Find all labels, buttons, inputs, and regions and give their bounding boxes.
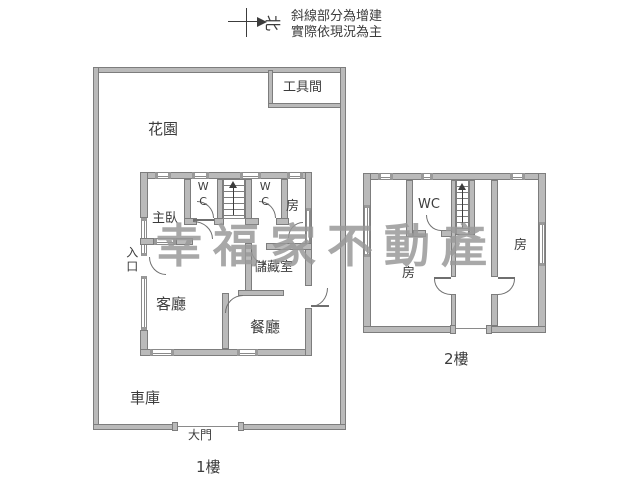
f1-toolroom-wall-bottom	[268, 103, 341, 108]
f1-house-wall-left-upper	[140, 172, 148, 218]
room-label-tool-room: 工具間	[283, 81, 322, 96]
watermark-text: 幸福家不動產	[156, 210, 498, 276]
room-label-wc-left: WC	[196, 180, 209, 210]
disclaimer-note: 斜線部分為增建 實際依現況為主	[291, 9, 382, 41]
f2-left-room-wall-lower	[451, 294, 456, 326]
f2-outer-wall-bottom-left	[363, 326, 456, 333]
f2-opening-cap-left	[450, 325, 456, 334]
f1-outer-wall-bottom-right	[238, 424, 346, 430]
f1-outer-wall-left	[93, 67, 99, 430]
f1-house-wall-right-lower	[305, 308, 312, 356]
window	[141, 276, 147, 330]
room-label-living-room: 客廳	[156, 296, 186, 313]
f1-dining-wall-top	[238, 290, 284, 296]
stairs-up-arrowhead	[229, 181, 237, 188]
entrance-label: 入口	[124, 246, 138, 274]
compass-vertical-line	[246, 8, 247, 37]
room-label-room-right-2f: 房	[514, 239, 527, 254]
room-label-dining-room: 餐廳	[250, 319, 280, 336]
floor1-title: 1樓	[196, 459, 221, 476]
note-line-2: 實際依現況為主	[291, 25, 382, 41]
room-label-garage: 車庫	[130, 390, 160, 407]
compass-horizontal-line	[228, 21, 259, 22]
floor-plan-canvas: 北 斜線部分為增建 實際依現況為主 幸福家不動產 工具間 花園 入口	[0, 0, 640, 480]
f2-balcony-threshold-line	[456, 328, 486, 329]
window	[150, 349, 174, 356]
f1-gate-threshold-line	[178, 426, 238, 427]
side-door-leaf	[311, 305, 329, 307]
f1-outer-wall-bottom-left	[93, 424, 178, 430]
room-label-wc-right: WC	[258, 180, 271, 210]
f1-outer-wall-top	[93, 67, 346, 73]
f2-outer-wall-bottom-right	[486, 326, 546, 333]
window	[155, 172, 171, 179]
f2-opening-cap-right	[486, 325, 492, 334]
right-room-door-arc	[498, 279, 515, 295]
f1-gate-cap-right	[238, 422, 244, 431]
left-room-door-arc	[434, 279, 451, 295]
note-line-1: 斜線部分為增建	[291, 9, 382, 25]
window	[510, 173, 525, 180]
window	[192, 172, 209, 179]
window	[141, 218, 147, 256]
window	[287, 172, 303, 179]
window	[421, 173, 433, 180]
room-label-garden: 花園	[148, 121, 178, 138]
wall-segment	[140, 238, 154, 245]
stairs-up-arrowhead	[458, 183, 466, 190]
window	[237, 349, 258, 356]
window	[539, 222, 545, 266]
f2-right-room-wall-lower	[491, 294, 498, 326]
floor2-title: 2樓	[444, 351, 469, 368]
window	[240, 172, 261, 179]
window	[378, 173, 393, 180]
north-label: 北	[262, 15, 286, 31]
main-gate-label: 大門	[188, 429, 212, 443]
